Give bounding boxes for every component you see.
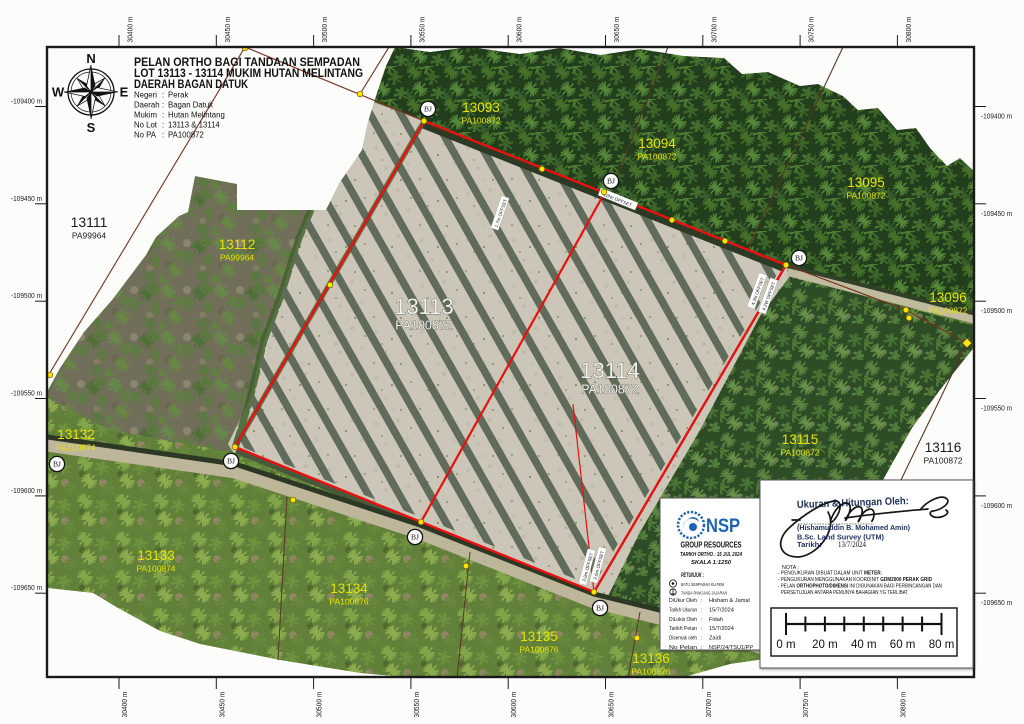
svg-text:(Hishamuddin B. Mohamed Amin): (Hishamuddin B. Mohamed Amin) [797, 523, 910, 532]
svg-text:PA100872: PA100872 [928, 306, 967, 316]
svg-text:Zaidi: Zaidi [709, 636, 721, 642]
svg-text:PA100874: PA100874 [56, 443, 95, 453]
svg-text:Bagan Datuk: Bagan Datuk [168, 101, 213, 110]
svg-text:PA100876: PA100876 [329, 597, 368, 607]
svg-text:-109400 m: -109400 m [981, 112, 1012, 121]
svg-text:-109500 m: -109500 m [981, 306, 1012, 315]
svg-text:- PENGUKURAN DIBUAT DALAM UNIT: - PENGUKURAN DIBUAT DALAM UNIT METER. [778, 571, 882, 577]
svg-text:30800 m: 30800 m [898, 692, 907, 718]
svg-text:13112: 13112 [219, 237, 256, 252]
svg-text:E: E [120, 85, 129, 100]
svg-text:Perak: Perak [168, 91, 188, 100]
svg-text:30450 m: 30450 m [217, 692, 226, 718]
svg-text:-109650 m: -109650 m [11, 583, 42, 592]
svg-text:Tarikh Pelan: Tarikh Pelan [669, 626, 697, 632]
svg-text:-109650 m: -109650 m [981, 598, 1012, 607]
svg-text:13132: 13132 [57, 427, 95, 442]
svg-text:PA100872: PA100872 [168, 131, 204, 140]
svg-text:60 m: 60 m [890, 639, 916, 651]
svg-text:PERSETUJUAN ANTARA PEMUNYA BAH: PERSETUJUAN ANTARA PEMUNYA BAHAGIAN YG T… [781, 590, 909, 596]
svg-text:DiLukis Oleh: DiLukis Oleh [669, 617, 697, 623]
svg-text:GROUP RESOURCES: GROUP RESOURCES [681, 541, 742, 550]
svg-text:BJ: BJ [424, 105, 432, 114]
svg-text:DAERAH BAGAN DATUK: DAERAH BAGAN DATUK [134, 77, 248, 91]
svg-text:BJ: BJ [795, 254, 803, 263]
svg-text:- PENGUKURAN MENGGUNAKAN KOORD: - PENGUKURAN MENGGUNAKAN KOORDINIT GDM20… [778, 577, 932, 583]
svg-text:20 m: 20 m [812, 639, 838, 651]
svg-text:13136: 13136 [632, 651, 670, 666]
svg-text:- PELAN ORTHOPHOTO/DIMENSI INI: - PELAN ORTHOPHOTO/DIMENSI INI DIGUNAKAN… [778, 584, 942, 590]
svg-text:-109450 m: -109450 m [981, 209, 1012, 218]
svg-text:-109500 m: -109500 m [11, 291, 42, 300]
svg-text:Negeri: Negeri [134, 91, 157, 100]
svg-text::: : [162, 111, 164, 120]
svg-text:40 m: 40 m [851, 639, 877, 651]
svg-text:13113 & 13114: 13113 & 13114 [168, 121, 220, 130]
svg-text:PA100872: PA100872 [581, 383, 639, 397]
svg-text:13096: 13096 [929, 290, 967, 305]
svg-text:No Lot: No Lot [134, 121, 158, 130]
svg-text:30650 m: 30650 m [607, 692, 616, 718]
svg-text:-109450 m: -109450 m [11, 194, 42, 203]
svg-text:Fidah: Fidah [709, 617, 723, 623]
svg-text::: : [162, 91, 164, 100]
svg-text:15/7/2024: 15/7/2024 [709, 626, 734, 632]
svg-text:Tarikh:: Tarikh: [797, 540, 822, 549]
svg-text:13093: 13093 [462, 100, 500, 115]
svg-text:-109550 m: -109550 m [11, 389, 42, 398]
svg-text:13115: 13115 [782, 432, 819, 447]
svg-text:30500 m: 30500 m [320, 17, 329, 43]
svg-text:DiUkur Oleh: DiUkur Oleh [669, 598, 697, 604]
svg-text:30800 m: 30800 m [904, 17, 913, 43]
svg-text:30700 m: 30700 m [709, 17, 718, 43]
svg-text:-109600 m: -109600 m [981, 501, 1012, 510]
svg-text:30500 m: 30500 m [315, 692, 324, 718]
svg-text:PETUNJUK :: PETUNJUK : [681, 573, 704, 579]
svg-text:No PA: No PA [134, 131, 157, 140]
svg-text:Daerah: Daerah [134, 101, 160, 110]
svg-text:30750 m: 30750 m [807, 17, 816, 43]
svg-text:15/7/2024: 15/7/2024 [709, 607, 734, 613]
svg-text:30550 m: 30550 m [417, 17, 426, 43]
svg-text:BJ: BJ [227, 457, 235, 466]
svg-text:Tarikh Ukuran: Tarikh Ukuran [669, 607, 697, 613]
svg-text:SKALA 1:1250: SKALA 1:1250 [691, 560, 731, 566]
svg-text::: : [162, 121, 164, 130]
svg-text:PA100872: PA100872 [637, 152, 676, 162]
svg-text:13095: 13095 [847, 175, 885, 190]
svg-text::: : [162, 101, 164, 110]
svg-text:Mukim: Mukim [134, 111, 157, 120]
svg-text:PA100872: PA100872 [461, 116, 500, 126]
svg-text:BJ: BJ [596, 604, 604, 613]
svg-text:BJ: BJ [607, 177, 615, 186]
svg-text:30750 m: 30750 m [801, 692, 810, 718]
svg-text:13114: 13114 [580, 358, 640, 383]
svg-text:Hutan Melintang: Hutan Melintang [168, 111, 225, 120]
svg-text:-109400 m: -109400 m [11, 97, 42, 106]
svg-text:PA100876: PA100876 [519, 645, 558, 655]
svg-text:13094: 13094 [638, 136, 676, 151]
svg-text:30400 m: 30400 m [126, 17, 135, 43]
svg-text:30450 m: 30450 m [223, 17, 232, 43]
svg-text:BJ: BJ [53, 460, 61, 469]
svg-text:30550 m: 30550 m [412, 692, 421, 718]
svg-text:PA99964: PA99964 [72, 231, 107, 241]
svg-text:30700 m: 30700 m [704, 692, 713, 718]
svg-text:13/7/2024: 13/7/2024 [838, 539, 867, 549]
svg-text:13116: 13116 [925, 440, 962, 455]
svg-text:30600 m: 30600 m [509, 692, 518, 718]
svg-text:13133: 13133 [137, 548, 175, 563]
svg-text:W: W [52, 85, 65, 100]
svg-text:13111: 13111 [71, 214, 108, 230]
svg-text::: : [162, 131, 164, 140]
svg-text:NSP: NSP [706, 516, 740, 537]
svg-text:PA99964: PA99964 [220, 253, 255, 263]
svg-text:13134: 13134 [330, 581, 368, 596]
svg-text:BJ: BJ [411, 533, 419, 542]
svg-text:N: N [86, 51, 95, 66]
svg-text:NSP/24/TSU1/PP: NSP/24/TSU1/PP [709, 645, 753, 651]
svg-text:-109550 m: -109550 m [981, 404, 1012, 413]
svg-text:-109600 m: -109600 m [11, 486, 42, 495]
svg-text:Hisham & Jamal: Hisham & Jamal [709, 598, 750, 604]
svg-text:BATU SEMPADAN KU PEM: BATU SEMPADAN KU PEM [681, 582, 724, 588]
svg-text:PA100872: PA100872 [923, 456, 962, 466]
svg-text:PA100872: PA100872 [395, 319, 453, 333]
svg-text:PA100876: PA100876 [631, 667, 670, 677]
svg-text:13113: 13113 [394, 294, 454, 319]
svg-text:80 m: 80 m [929, 639, 955, 651]
svg-text:TARIKH ORTHO : 15 JUL 2024: TARIKH ORTHO : 15 JUL 2024 [680, 552, 742, 558]
svg-text:30600 m: 30600 m [515, 17, 524, 43]
svg-text:13135: 13135 [520, 629, 558, 644]
svg-text:30650 m: 30650 m [612, 17, 621, 43]
svg-text:TANDA PANCANG JAJARAN: TANDA PANCANG JAJARAN [681, 591, 727, 597]
svg-text:PA100872: PA100872 [846, 191, 885, 201]
svg-text:Disemak oleh: Disemak oleh [669, 636, 697, 642]
svg-text:30400 m: 30400 m [120, 692, 129, 718]
svg-text:No Pelan: No Pelan [669, 645, 697, 651]
svg-text:S: S [87, 120, 96, 135]
svg-text:PA100874: PA100874 [136, 564, 175, 574]
svg-text:0 m: 0 m [776, 639, 795, 651]
svg-text:PA100872: PA100872 [780, 448, 819, 458]
